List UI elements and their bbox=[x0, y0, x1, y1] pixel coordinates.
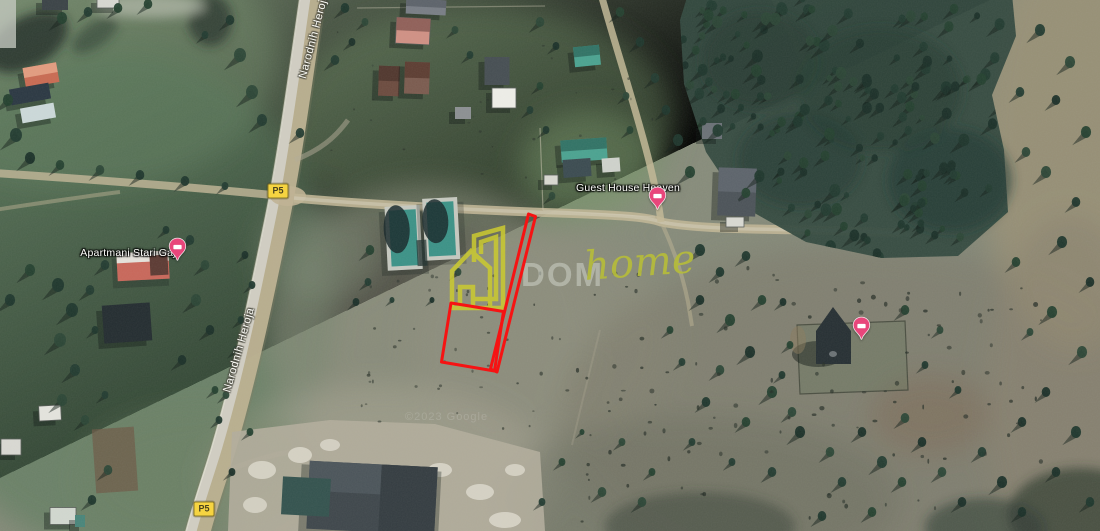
lodging-pin-cabin[interactable] bbox=[852, 316, 871, 342]
place-label-apartmani: Apartmani Stari Gaj bbox=[80, 247, 175, 259]
parcel-outline-main bbox=[442, 303, 504, 371]
satellite-map-canvas[interactable]: DOM home Apartmani Stari Gaj Guest House… bbox=[0, 0, 1100, 531]
parcel-annotation-layer bbox=[0, 0, 1100, 531]
lodging-pin-guest-house[interactable] bbox=[648, 186, 667, 212]
bed-icon bbox=[173, 245, 181, 249]
bed-icon bbox=[653, 194, 661, 198]
bed-icon bbox=[857, 324, 865, 328]
lodging-pin-apartmani[interactable] bbox=[168, 237, 187, 263]
